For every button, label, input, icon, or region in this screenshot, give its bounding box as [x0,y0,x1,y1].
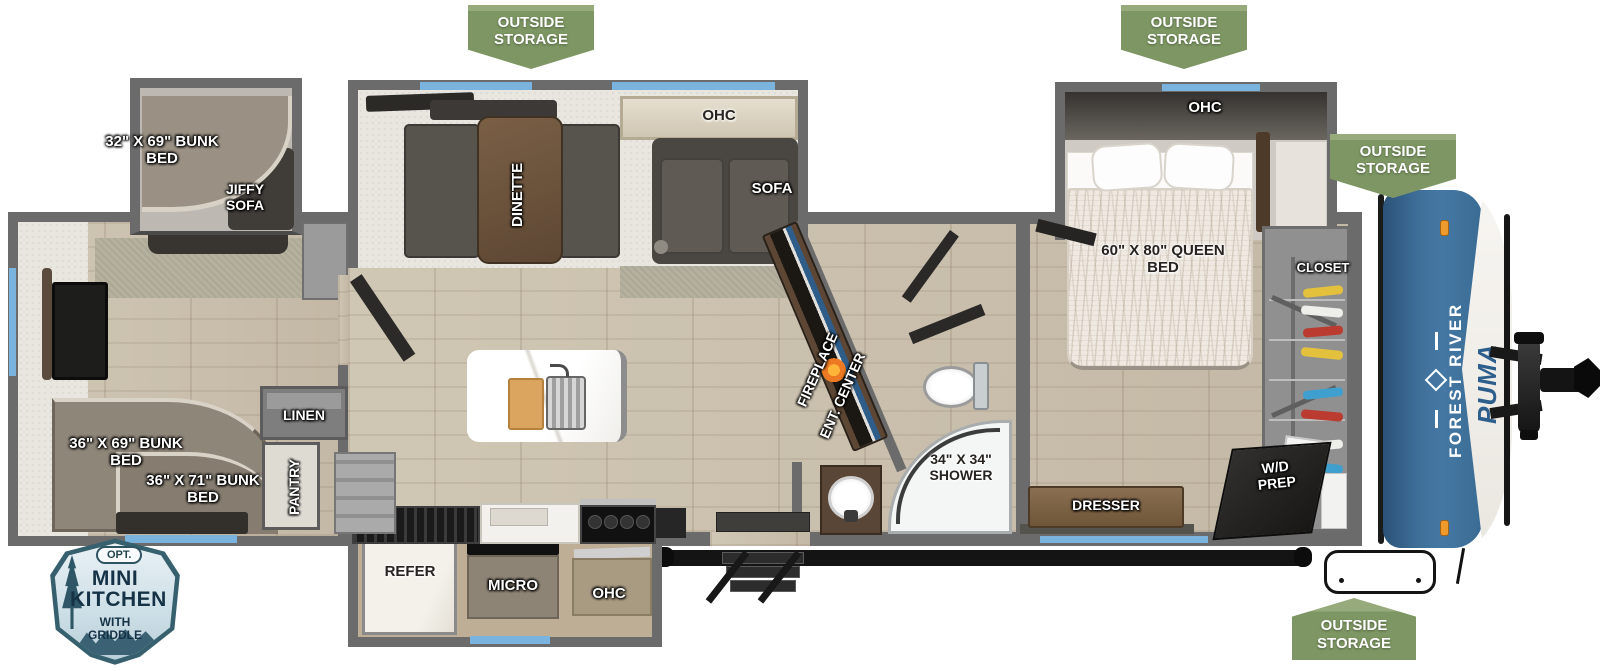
living-window-strip-2 [612,82,775,90]
forest-river-logo-icon [1425,369,1448,392]
rear-bunk-lower-label: 36" X 71" BUNK BED [143,473,263,507]
floorplan-canvas: 36" X 69" BUNK BED 36" X 71" BUNK BED LI… [0,0,1600,671]
tongue-jack-cap [1514,332,1544,344]
mini-kitchen-hutch [334,452,396,534]
burner-2 [604,515,618,529]
queen-bed [1067,188,1253,370]
living-window-strip-1 [420,82,532,90]
marker-light-top [1440,220,1449,236]
bedroom-window-strip [1040,536,1208,543]
mini-kitchen-subtitle: WITH GRIDDLE [80,616,150,642]
burner-1 [588,515,602,529]
brand-deco-column [1428,300,1444,460]
bath-right-wall [1016,222,1030,532]
rear-door-opening [338,275,348,365]
closet-shelf-3 [1269,379,1345,381]
wd-prep-label: W/D PREP [1247,457,1306,494]
tongue-jack-foot [1520,430,1538,440]
rear-slide-bunk-label: 32" X 69" BUNK BED [102,134,222,168]
refer-cabinet [362,540,457,635]
closet-appliance [1321,473,1347,529]
outside-storage-badge-top-right: OUTSIDE STORAGE [1121,5,1247,69]
propane-bolt-right [1416,578,1421,583]
opt-pill: OPT. [96,546,142,564]
living-ohc-label: OHC [689,108,749,125]
closet-label: CLOSET [1294,261,1352,276]
marker-light-bottom [1440,520,1449,536]
bath-faucet [844,510,858,522]
deco-dash-top [1435,332,1438,350]
bedroom-ohc-label: OHC [1170,100,1240,117]
shower-label: 34" X 34" SHOWER [918,452,1004,483]
front-cap-trim-right [1504,214,1510,526]
island-sink [546,376,586,430]
refer-label: REFER [368,564,452,581]
dinette-bench-right [558,124,620,258]
bedroom-window-strip-top [1162,84,1260,91]
mini-kitchen-title: MINI KITCHEN [70,568,160,610]
awning-end-right [1294,547,1312,567]
bed-headboard [1256,132,1270,232]
outside-storage-badge-front: OUTSIDE STORAGE [1330,134,1456,198]
entry-door-panel [716,512,810,532]
tongue-jack [1518,338,1540,434]
tv-mount-pole [42,268,52,380]
power-cord [1456,548,1465,584]
burner-4 [636,515,650,529]
puma-wordmark: PUMA [1472,324,1503,444]
jiffy-sofa-label: JIFFY SOFA [210,182,280,213]
outside-storage-badge-bottom: OUTSIDE STORAGE [1292,598,1416,660]
rear-room-tv [52,282,108,380]
clothes-yellow-2 [1301,347,1344,360]
entry-opening [710,532,810,546]
bedroom-side-wall [1276,142,1326,236]
rear-bunk-seat [116,512,248,534]
counter-end-panel [656,508,686,538]
micro-label: MICRO [472,578,554,595]
kitchen-ohc-label: OHC [574,586,644,603]
clothes-blue-1 [1303,387,1344,400]
pillow-right [1163,142,1235,192]
propane-cover [1324,550,1436,594]
toilet-bowl [923,366,979,408]
stove-cooktop [580,505,656,544]
outside-storage-badge-top-left: OUTSIDE STORAGE [468,5,594,69]
queen-bed-label: 60" X 80" QUEEN BED [1098,243,1228,277]
burner-3 [620,515,634,529]
toilet-tank [973,362,989,410]
sofa-armrest-left [654,240,668,254]
pantry-label: PANTRY [287,452,303,522]
rear-bunk-upper-label: 36" X 69" BUNK BED [66,436,186,470]
deco-dash-bottom [1435,410,1438,428]
mini-kitchen-badge: OPT. MINI KITCHEN WITH GRIDDLE [46,536,184,666]
forest-river-wordmark: FOREST RIVER [1446,262,1466,498]
entry-steps [718,546,810,612]
cutting-board [508,378,544,430]
clothes-yellow-1 [1303,285,1344,298]
sofa-label: SOFA [740,181,804,198]
dinette-label: DINETTE [510,150,527,240]
linen-label: LINEN [262,408,346,424]
sofa-cushion-left [660,158,724,254]
clothes-red-1 [1303,325,1344,337]
hitch-coupler [1574,358,1600,398]
dinette-bench-left [404,124,480,258]
propane-bolt-left [1339,578,1344,583]
rear-window-strip [9,268,16,376]
pillow-left [1090,142,1163,193]
dresser-label: DRESSER [1068,498,1144,514]
closet-shelf-2 [1269,339,1345,341]
kitchen-window-strip [470,636,550,644]
counter-lid [490,508,548,526]
